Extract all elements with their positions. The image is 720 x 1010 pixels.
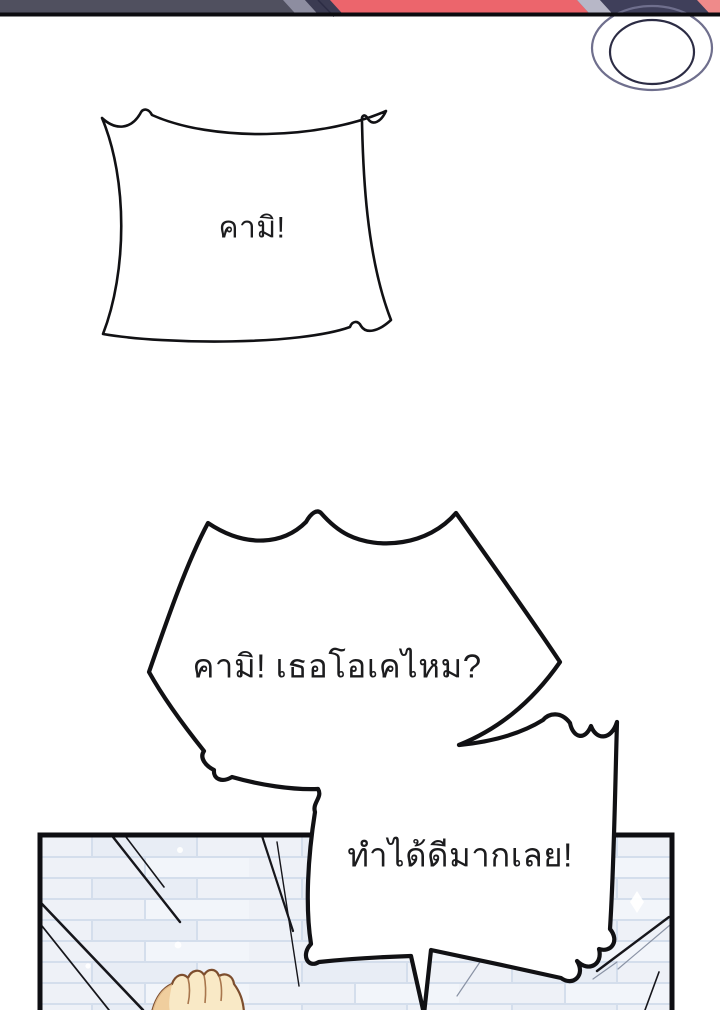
bubble-1-text: คามิ! — [218, 205, 285, 252]
previous-panel-strip — [0, 0, 720, 90]
bubble-2-text: คามิ! เธอโอเคไหม? — [192, 640, 481, 693]
panel-divider — [0, 13, 720, 17]
bubble-3-text: ทำได้ดีมากเลย! — [347, 829, 573, 882]
comic-page: คามิ! คามิ! เธอโอเคไหม? ทำได้ดีมากเลย! — [0, 0, 720, 1010]
